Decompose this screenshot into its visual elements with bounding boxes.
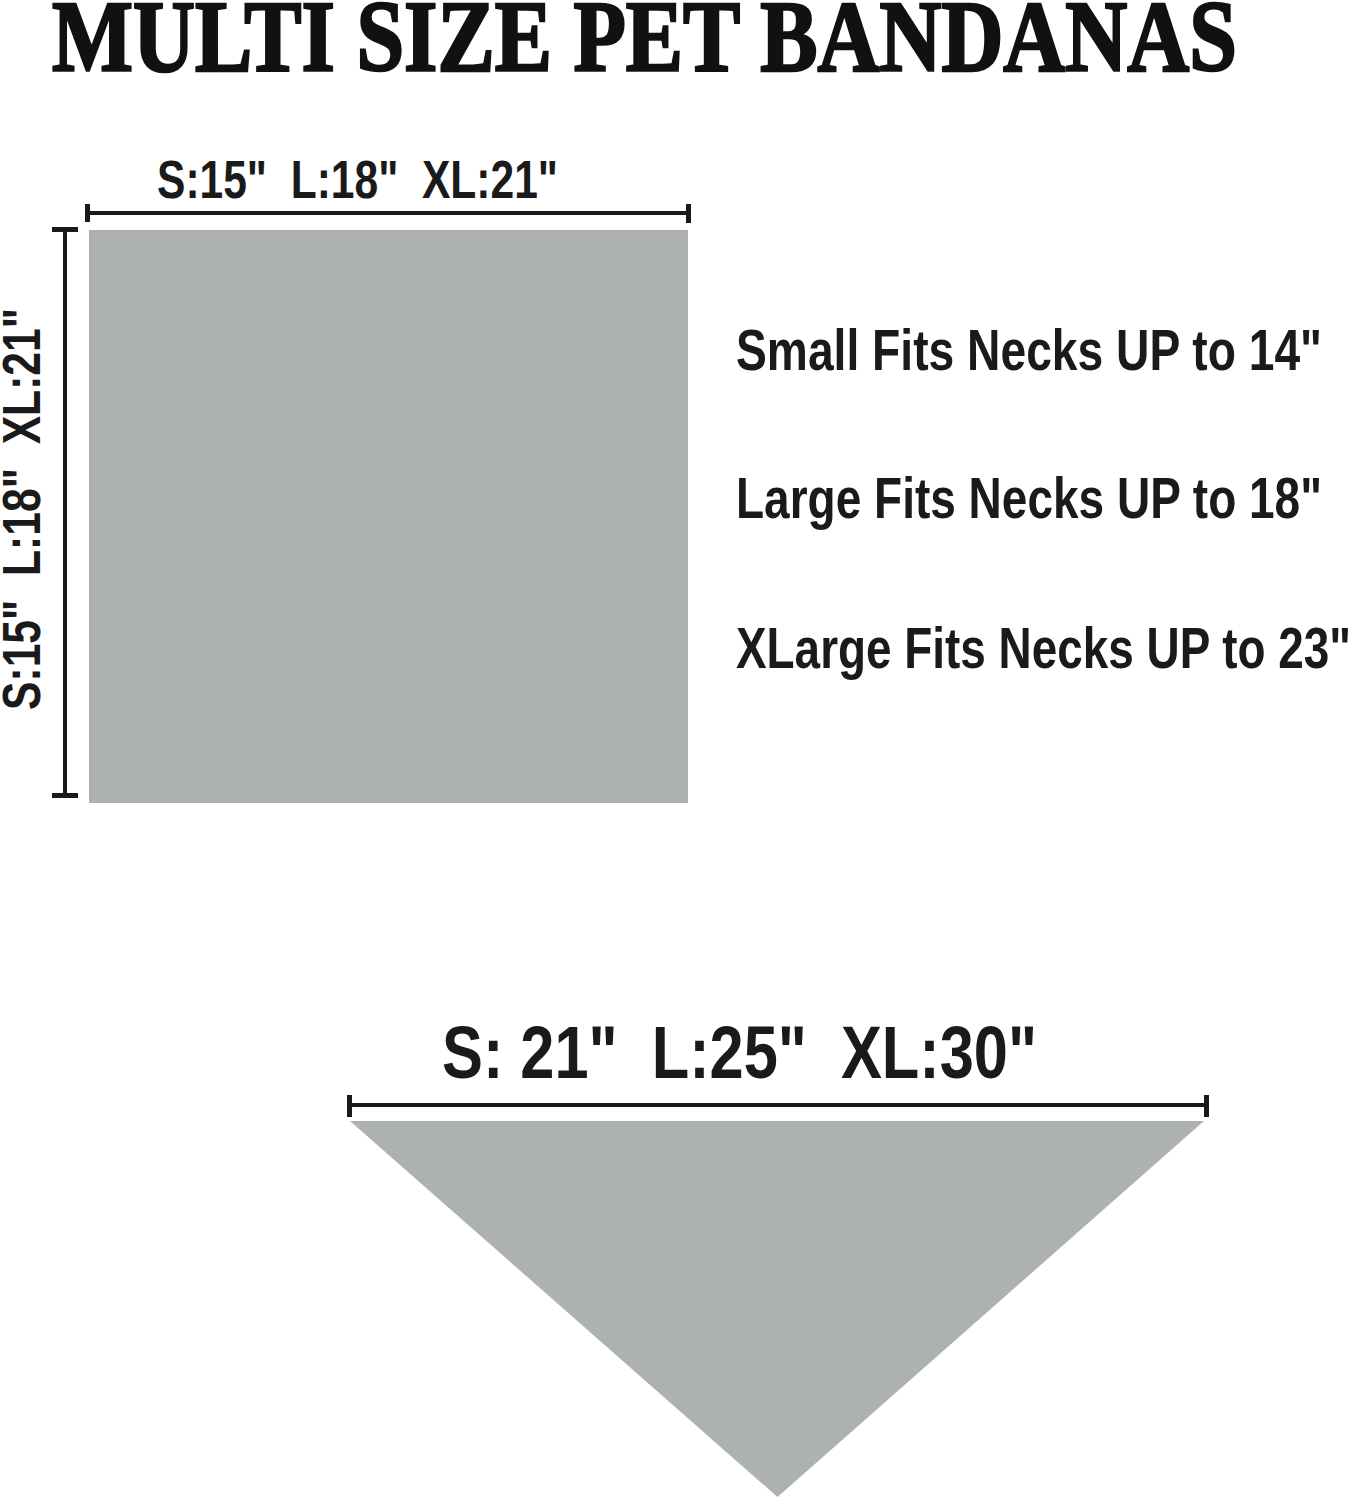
svg-text:S: 21" L:25" XL:30": S: 21" L:25" XL:30" — [442, 1011, 1037, 1094]
svg-text:S:15" L:18" XL:21": S:15" L:18" XL:21" — [0, 308, 51, 710]
svg-text:XLarge Fits Necks UP to 23": XLarge Fits Necks UP to 23" — [736, 616, 1351, 680]
svg-text:MULTI SIZE PET BANDANAS: MULTI SIZE PET BANDANAS — [52, 0, 1237, 93]
svg-text:S:15" L:18" XL:21": S:15" L:18" XL:21" — [157, 150, 558, 209]
svg-text:Small Fits Necks UP to 14": Small Fits Necks UP to 14" — [736, 318, 1322, 382]
svg-text:Large Fits Necks UP to 18": Large Fits Necks UP to 18" — [736, 466, 1322, 530]
